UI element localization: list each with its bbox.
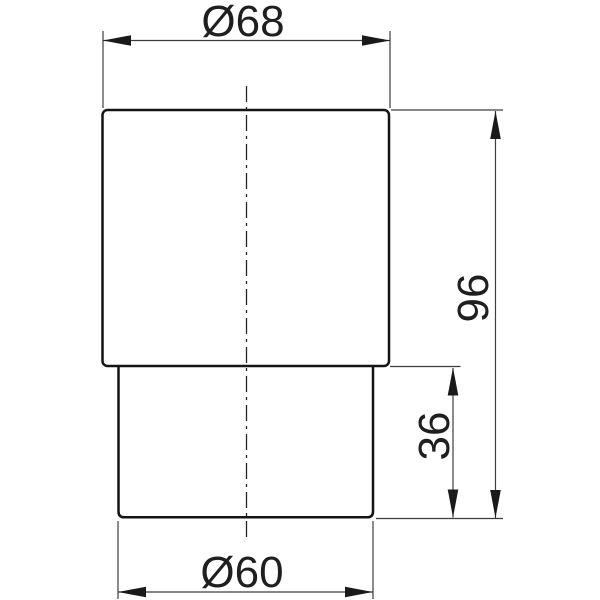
dia60-arrow-left-icon: [118, 587, 146, 598]
upper-body-outline: [103, 110, 390, 366]
drawing-canvas: Ø68 Ø60 96 36: [0, 0, 600, 600]
part-outline-group: [103, 110, 390, 517]
dia68-arrow-left-icon: [103, 35, 131, 46]
arrowheads-group: [103, 35, 501, 597]
dimension-lines-group: [103, 31, 503, 599]
lower-section-height-label: 36: [410, 412, 459, 461]
top-diameter-label: Ø68: [201, 0, 284, 46]
h36-arrow-down-icon: [448, 490, 459, 518]
h96-arrow-up-icon: [490, 111, 501, 139]
h96-arrow-down-icon: [490, 490, 501, 518]
dia60-arrow-right-icon: [345, 587, 373, 598]
technical-drawing-page: Ø68 Ø60 96 36: [0, 0, 600, 600]
lower-body-outline: [119, 366, 374, 517]
overall-height-label: 96: [449, 274, 498, 323]
bottom-diameter-label: Ø60: [200, 548, 283, 597]
h36-arrow-up-icon: [448, 368, 459, 396]
dia68-arrow-right-icon: [362, 35, 390, 46]
